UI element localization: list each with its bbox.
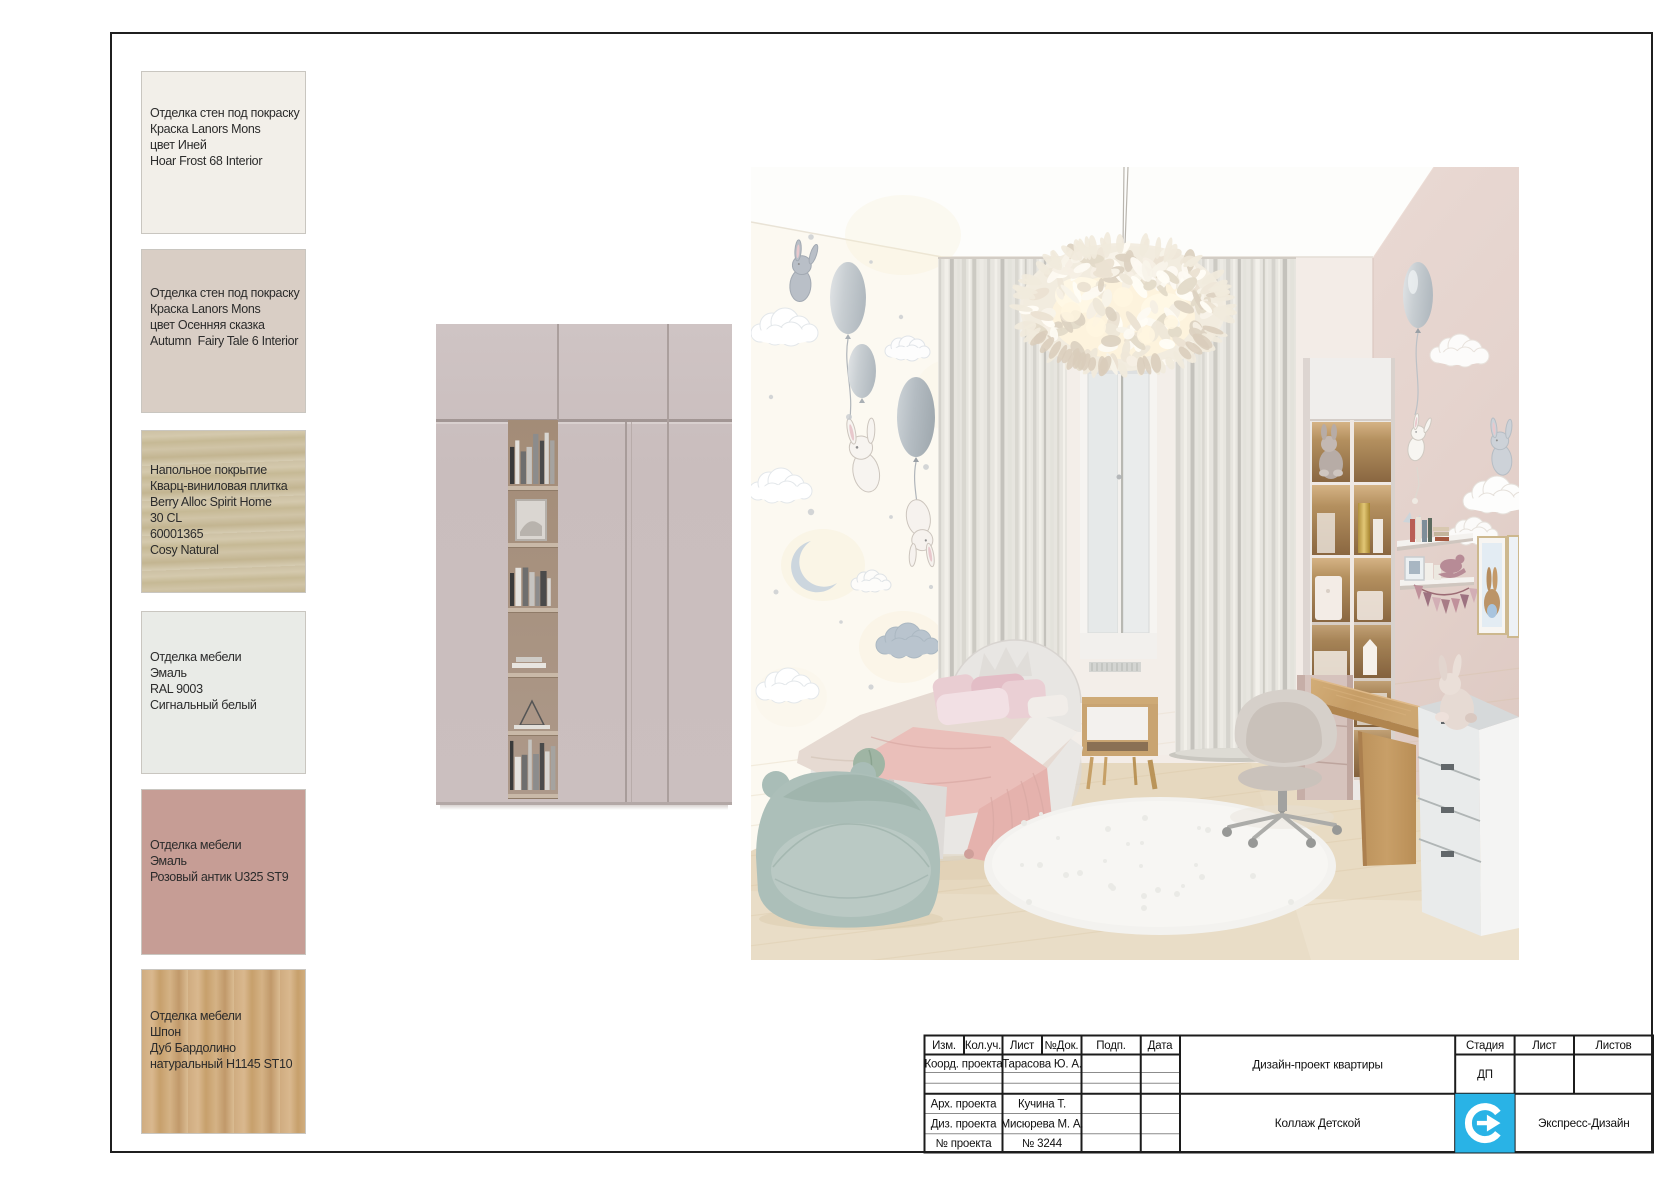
svg-text:Коллаж Детской: Коллаж Детской <box>1275 1116 1361 1130</box>
svg-text:Кучина Т.: Кучина Т. <box>1018 1099 1066 1111</box>
svg-text:Подп.: Подп. <box>1096 1040 1126 1052</box>
svg-text:Коорд. проекта: Коорд. проекта <box>924 1059 1003 1071</box>
svg-text:Лист: Лист <box>1010 1040 1035 1052</box>
svg-text:Листов: Листов <box>1595 1040 1631 1052</box>
svg-text:№Док.: №Док. <box>1045 1040 1079 1052</box>
svg-text:Экспресс-Дизайн: Экспресс-Дизайн <box>1538 1116 1630 1130</box>
svg-text:Лист: Лист <box>1532 1040 1557 1052</box>
svg-text:Дата: Дата <box>1148 1040 1173 1052</box>
svg-text:Кол.уч.: Кол.уч. <box>965 1040 1001 1052</box>
svg-text:Мисюрева М. А.: Мисюрева М. А. <box>1001 1119 1084 1131</box>
svg-text:ДП: ДП <box>1477 1069 1493 1081</box>
svg-text:Дизайн-проект квартиры: Дизайн-проект квартиры <box>1252 1058 1382 1072</box>
svg-text:Тарасова Ю. А.: Тарасова Ю. А. <box>1002 1059 1082 1071</box>
svg-text:Изм.: Изм. <box>932 1040 956 1052</box>
svg-text:№ 3244: № 3244 <box>1022 1138 1063 1150</box>
svg-text:№ проекта: № проекта <box>936 1138 993 1150</box>
svg-text:Арх. проекта: Арх. проекта <box>931 1099 998 1111</box>
svg-text:Диз. проекта: Диз. проекта <box>931 1119 997 1131</box>
svg-text:Стадия: Стадия <box>1466 1040 1504 1052</box>
